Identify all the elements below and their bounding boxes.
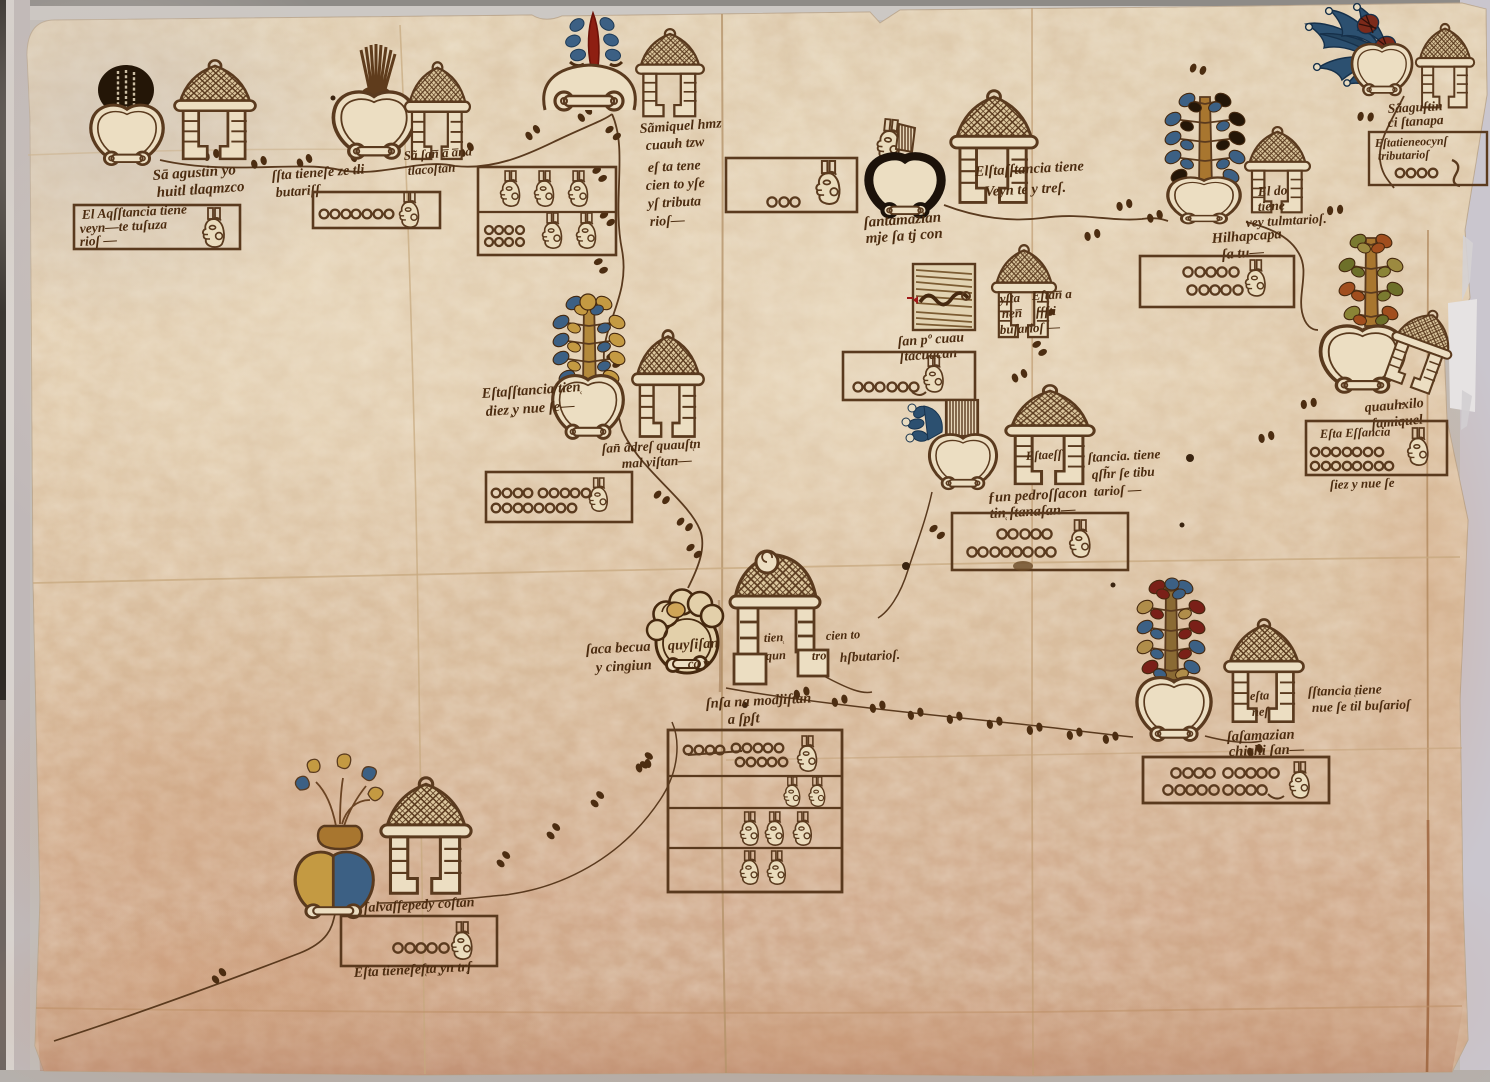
- svg-text:neſ: neſ: [1252, 704, 1271, 719]
- svg-text:tributarioſ: tributarioſ: [1378, 147, 1431, 163]
- svg-text:nen̅: nen̅: [1001, 305, 1023, 321]
- svg-text:tien̜: tien̜: [763, 630, 784, 645]
- svg-text:cien to yſe: cien to yſe: [645, 176, 705, 194]
- svg-text:buſarioſ —: buſarioſ —: [999, 319, 1060, 337]
- svg-text:yſta: yſta: [997, 290, 1020, 306]
- svg-text:yſ tributa: yſ tributa: [645, 194, 701, 212]
- svg-text:y cingiun: y cingiun: [593, 657, 652, 676]
- svg-text:qun: qun: [765, 648, 786, 663]
- svg-text:Eſtan̅ a: Eſtan̅ a: [1030, 286, 1072, 303]
- svg-text:rioſ—: rioſ—: [649, 213, 685, 230]
- svg-text:quyſiſan: quyſiſan: [667, 635, 719, 654]
- svg-text:ſſtancia ̜tiene: ſſtancia ̜tiene: [1308, 681, 1382, 699]
- svg-text:tro: tro: [811, 648, 826, 663]
- svg-text:Eſtaeſſ: Eſtaeſſ: [1024, 447, 1064, 463]
- svg-text:ſſſti: ſſſti: [1035, 303, 1056, 319]
- svg-text:eſ ta tene: eſ ta tene: [647, 158, 701, 176]
- svg-text:hſbutarioſ.: hſbutarioſ.: [839, 647, 900, 665]
- svg-text:ci ſtanapa: ci ſtanapa: [1387, 112, 1444, 130]
- svg-text:ſaca becua: ſaca becua: [585, 639, 651, 658]
- svg-text:a ſ̜p̜ſt: a ſ̜p̜ſt: [727, 710, 761, 728]
- svg-text:El do: El do: [1256, 182, 1288, 199]
- svg-text:tiene: tiene: [1257, 198, 1285, 214]
- svg-text:ſiez y nue ſe: ſiez y nue ſe: [1330, 475, 1395, 492]
- svg-text:Eſta Eſſancia: Eſta Eſſancia: [1319, 425, 1391, 441]
- svg-text:ca y: ca y: [687, 655, 709, 671]
- svg-text:eſta: eſta: [1250, 688, 1270, 703]
- svg-text:tarioſ —: tarioſ —: [1093, 481, 1142, 498]
- svg-text:rioſ —: rioſ —: [79, 232, 117, 249]
- svg-text:cien to: cien to: [825, 627, 860, 643]
